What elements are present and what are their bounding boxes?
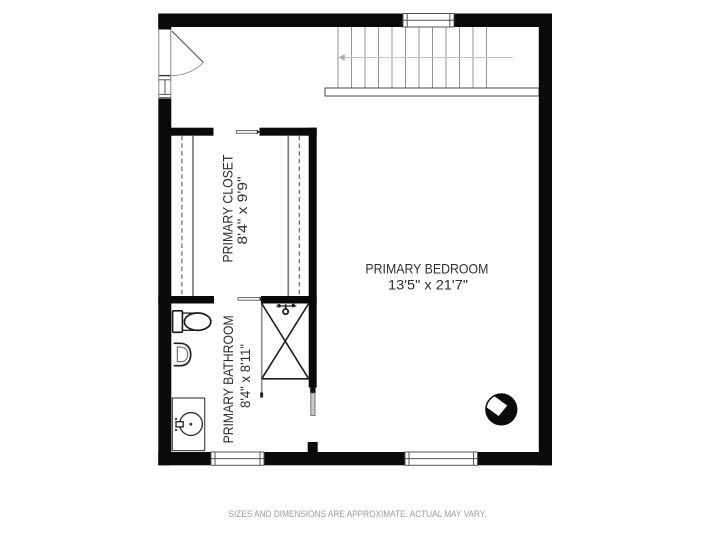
svg-text:8'4" x 8'11": 8'4" x 8'11" <box>237 344 253 408</box>
svg-text:PRIMARY BEDROOM: PRIMARY BEDROOM <box>365 260 488 276</box>
svg-text:PRIMARY BATHROOM: PRIMARY BATHROOM <box>220 315 236 443</box>
svg-text:8'4" x 9'9": 8'4" x 9'9" <box>234 176 250 244</box>
svg-text:SIZES AND DIMENSIONS ARE APPRO: SIZES AND DIMENSIONS ARE APPROXIMATE. AC… <box>229 509 487 520</box>
svg-text:13'5" x 21'7": 13'5" x 21'7" <box>388 276 468 292</box>
